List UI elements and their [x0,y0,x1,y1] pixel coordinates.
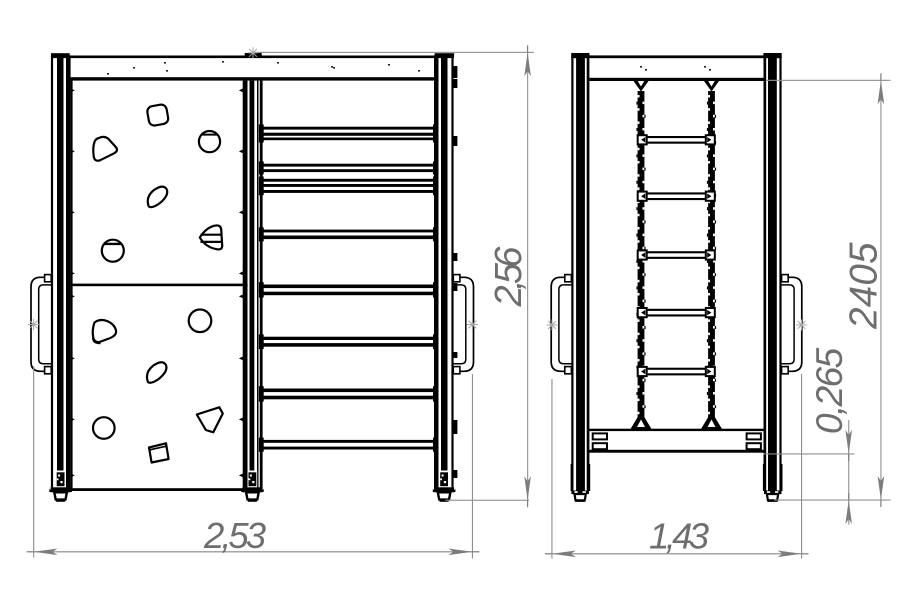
svg-text:2405: 2405 [842,242,885,330]
svg-text:2,53: 2,53 [203,515,266,556]
svg-text:0,265: 0,265 [808,348,850,435]
svg-text:2,56: 2,56 [488,246,530,308]
svg-text:1,43: 1,43 [649,515,709,556]
